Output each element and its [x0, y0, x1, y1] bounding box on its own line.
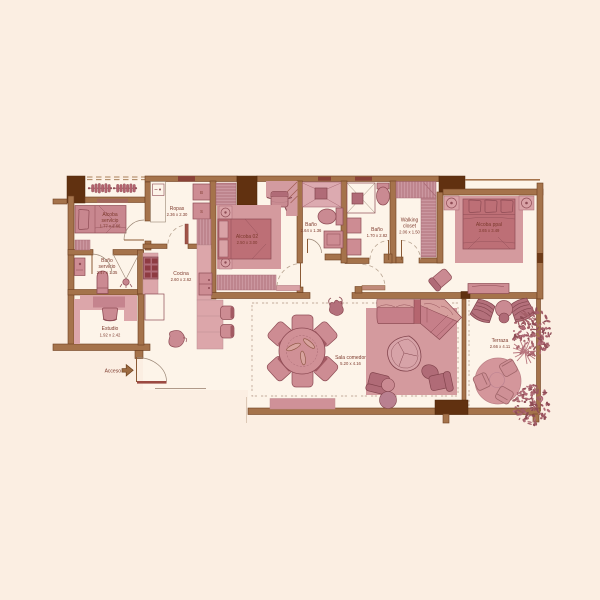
svg-text:1.77 x 2.66: 1.77 x 2.66: [100, 224, 121, 229]
svg-text:2.64 x 1.36: 2.64 x 1.36: [301, 228, 322, 233]
svg-text:S: S: [200, 209, 203, 214]
svg-text:3.65 x 3.49: 3.65 x 3.49: [479, 228, 500, 233]
svg-text:1.92 x 2.42: 1.92 x 2.42: [100, 333, 121, 338]
svg-text:Estudio: Estudio: [102, 326, 119, 332]
svg-text:B: B: [200, 190, 203, 195]
svg-text:Acceso: Acceso: [105, 369, 122, 375]
svg-text:2.36 x 2.30: 2.36 x 2.30: [167, 212, 188, 217]
svg-text:1.70 x 2.82: 1.70 x 2.82: [367, 233, 388, 238]
svg-text:2.47 x 1.35: 2.47 x 1.35: [97, 270, 118, 275]
svg-text:5.20 x 4.16: 5.20 x 4.16: [340, 361, 361, 366]
svg-text:2.06 x 1.50: 2.06 x 1.50: [399, 230, 420, 235]
svg-text:2.60 x 2.62: 2.60 x 2.62: [171, 277, 192, 282]
svg-text:2.66 x 4.11: 2.66 x 4.11: [490, 344, 511, 349]
svg-text:2.50 x 3.00: 2.50 x 3.00: [237, 240, 258, 245]
